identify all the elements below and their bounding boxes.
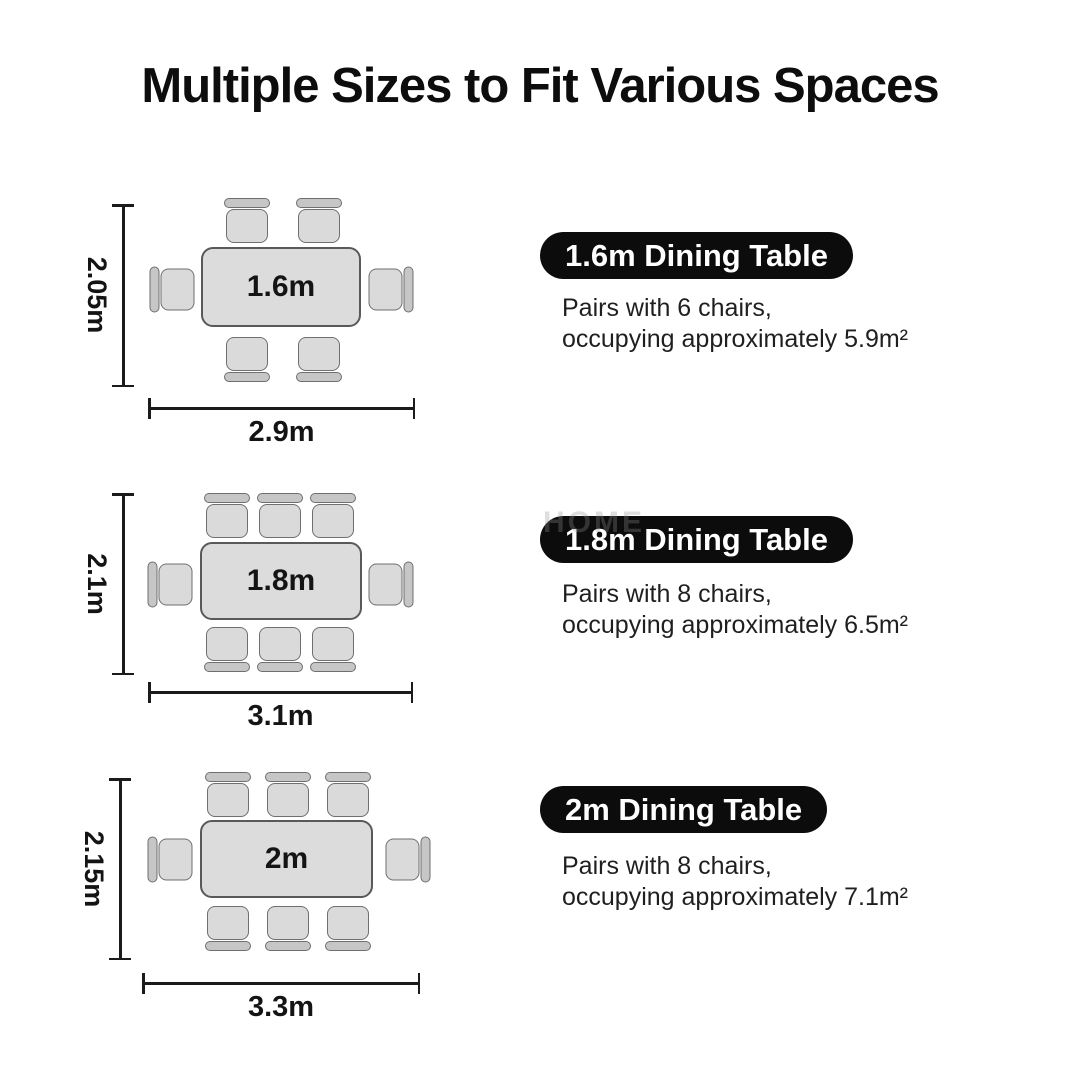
- chair-seat: [259, 504, 301, 538]
- chair-seat: [327, 783, 369, 817]
- chair-backrest: [224, 198, 270, 208]
- width-dimension-label: 3.3m: [142, 991, 420, 1024]
- chair-icon: [265, 906, 311, 951]
- chair-seat: [369, 269, 403, 311]
- chair-seat: [159, 839, 193, 881]
- dining-table-top-view: 1.6m: [201, 247, 361, 327]
- chair-backrest: [404, 562, 414, 608]
- chair-backrest: [296, 372, 342, 382]
- description-line: Pairs with 6 chairs,: [562, 293, 908, 324]
- chair-seat: [267, 906, 309, 940]
- chair-seat: [206, 627, 248, 661]
- chair-icon: [310, 627, 356, 672]
- depth-dimension-label: 2.05m: [80, 235, 114, 355]
- depth-dimension-label: 2.15m: [77, 809, 111, 929]
- chair-backrest: [421, 837, 431, 883]
- chair-seat: [298, 209, 340, 243]
- chair-backrest: [205, 772, 251, 782]
- chair-seat: [159, 564, 193, 606]
- chair-backrest: [310, 493, 356, 503]
- table-length-label: 1.6m: [247, 270, 315, 304]
- chair-icon: [205, 772, 251, 817]
- chair-seat: [312, 504, 354, 538]
- chair-seat: [226, 337, 268, 371]
- description-line: Pairs with 8 chairs,: [562, 851, 908, 882]
- chair-seat: [327, 906, 369, 940]
- chair-backrest: [148, 562, 158, 608]
- chair-seat: [161, 269, 195, 311]
- section-description: Pairs with 6 chairs, occupying approxima…: [562, 293, 908, 355]
- chair-icon: [369, 267, 414, 313]
- depth-dimension-label: 2.1m: [80, 524, 114, 644]
- chair-icon: [148, 837, 193, 883]
- chair-backrest: [257, 493, 303, 503]
- chair-seat: [312, 627, 354, 661]
- page-title: Multiple Sizes to Fit Various Spaces: [0, 58, 1080, 114]
- description-line: occupying approximately 6.5m²: [562, 610, 908, 641]
- chair-seat: [207, 906, 249, 940]
- section-title-badge: 1.8m Dining Table: [540, 516, 853, 563]
- chair-backrest: [296, 198, 342, 208]
- dining-table-top-view: 1.8m: [200, 542, 362, 620]
- chair-seat: [206, 504, 248, 538]
- description-line: occupying approximately 5.9m²: [562, 324, 908, 355]
- chair-icon: [205, 906, 251, 951]
- chair-backrest: [148, 837, 158, 883]
- chair-icon: [386, 837, 431, 883]
- chair-icon: [224, 337, 270, 382]
- chair-backrest: [224, 372, 270, 382]
- dining-table-top-view: 2m: [200, 820, 373, 898]
- chair-backrest: [325, 941, 371, 951]
- description-line: occupying approximately 7.1m²: [562, 882, 908, 913]
- chair-icon: [369, 562, 414, 608]
- chair-icon: [325, 906, 371, 951]
- chair-icon: [204, 493, 250, 538]
- chair-backrest: [310, 662, 356, 672]
- chair-icon: [310, 493, 356, 538]
- chair-backrest: [150, 267, 160, 313]
- chair-backrest: [204, 662, 250, 672]
- depth-dimension-line: [119, 779, 122, 959]
- section-description: Pairs with 8 chairs, occupying approxima…: [562, 579, 908, 641]
- chair-backrest: [257, 662, 303, 672]
- depth-dimension-line: [122, 494, 125, 674]
- width-dimension-label: 3.1m: [148, 700, 413, 733]
- table-length-label: 1.8m: [247, 564, 315, 598]
- chair-icon: [150, 267, 195, 313]
- chair-icon: [296, 198, 342, 243]
- table-length-label: 2m: [265, 842, 308, 876]
- description-line: Pairs with 8 chairs,: [562, 579, 908, 610]
- chair-seat: [267, 783, 309, 817]
- chair-seat: [259, 627, 301, 661]
- chair-seat: [386, 839, 420, 881]
- chair-backrest: [204, 493, 250, 503]
- chair-icon: [257, 493, 303, 538]
- chair-seat: [369, 564, 403, 606]
- chair-seat: [226, 209, 268, 243]
- section-description: Pairs with 8 chairs, occupying approxima…: [562, 851, 908, 913]
- chair-icon: [257, 627, 303, 672]
- chair-backrest: [404, 267, 414, 313]
- width-dimension-line: [148, 691, 413, 694]
- chair-icon: [224, 198, 270, 243]
- chair-backrest: [265, 941, 311, 951]
- section-title-badge: 2m Dining Table: [540, 786, 827, 833]
- chair-backrest: [265, 772, 311, 782]
- infographic-canvas: Multiple Sizes to Fit Various Spaces 2.0…: [0, 0, 1080, 1080]
- chair-seat: [298, 337, 340, 371]
- chair-icon: [265, 772, 311, 817]
- section-title-badge: 1.6m Dining Table: [540, 232, 853, 279]
- width-dimension-line: [142, 982, 420, 985]
- chair-icon: [204, 627, 250, 672]
- chair-seat: [207, 783, 249, 817]
- chair-icon: [325, 772, 371, 817]
- chair-backrest: [205, 941, 251, 951]
- chair-icon: [296, 337, 342, 382]
- width-dimension-label: 2.9m: [148, 416, 415, 449]
- depth-dimension-line: [122, 205, 125, 386]
- chair-icon: [148, 562, 193, 608]
- width-dimension-line: [148, 407, 415, 410]
- chair-backrest: [325, 772, 371, 782]
